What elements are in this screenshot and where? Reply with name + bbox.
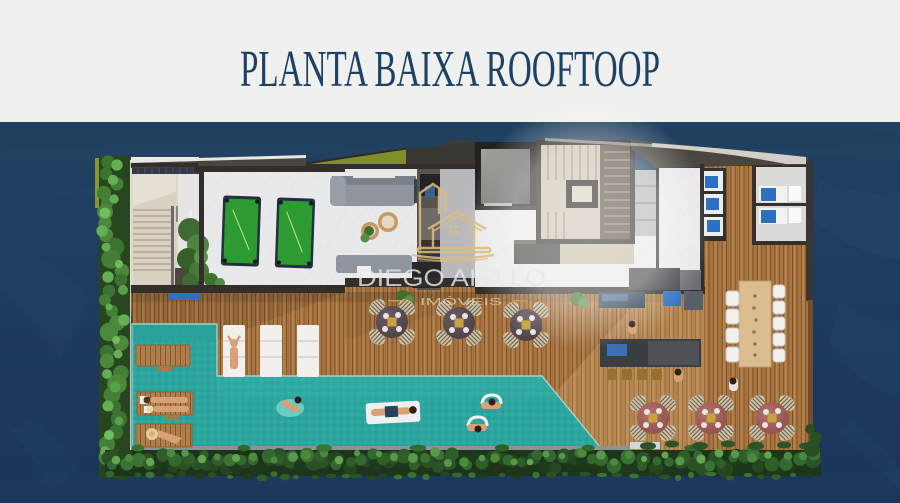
svg-text:PLANTA BAIXA ROOFTOOP: PLANTA BAIXA ROOFTOOP [240, 41, 660, 98]
svg-text:IMÓVEIS: IMÓVEIS [420, 295, 503, 308]
svg-text:DIEGO AIELLO: DIEGO AIELLO [357, 265, 546, 292]
